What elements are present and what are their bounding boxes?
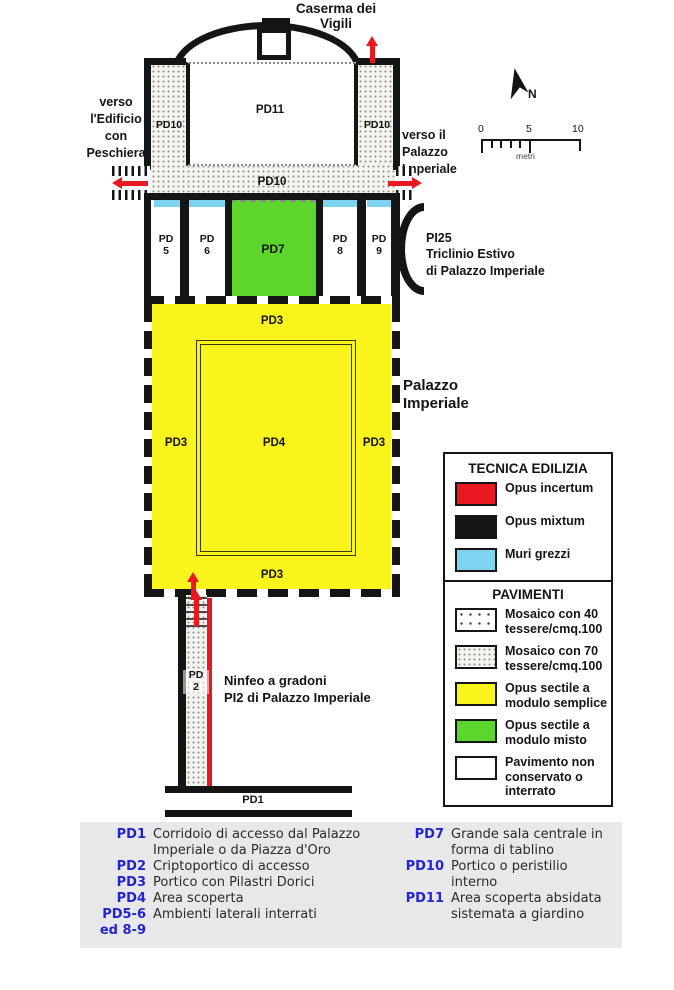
verso-palazzo-imperiale-label: verso il Palazzo Imperiale [402, 127, 478, 178]
pd10-right-label: PD10 [359, 120, 395, 132]
pd10-bottom-label: PD10 [240, 176, 304, 189]
scale-tick-5-label: 5 [526, 124, 532, 136]
legend-item-non-conservato: Pavimento non conservato o interrato [445, 755, 611, 805]
sectile-misto-swatch [455, 719, 497, 743]
rooms-outer-wall-left [144, 200, 151, 304]
wall-pd7-pd8 [316, 200, 323, 298]
pd3-top-label: PD3 [244, 315, 300, 328]
pd10-left-label: PD10 [152, 120, 186, 132]
muri-grezzi-segment-pd9 [367, 200, 391, 207]
site-plan-page: Caserma dei Vigili verso l'Edificio con … [0, 0, 674, 990]
legend-item-opus-mixtum: Opus mixtum [445, 514, 611, 547]
rooms-bottom-wall [144, 296, 400, 304]
caption-row-pd10: PD10 Portico o peristilio interno [388, 859, 618, 891]
non-conservato-swatch [455, 756, 497, 780]
pi25-label: PI25 Triclinio Estivo di Palazzo Imperia… [426, 230, 616, 279]
exit-arrow-right-icon [388, 177, 422, 190]
pd2-label: PD 2 [183, 670, 209, 694]
pd5-label: PD 5 [151, 234, 181, 258]
scale-tick-0-label: 0 [478, 124, 484, 136]
ninfeo-label: Ninfeo a gradoni PI2 di Palazzo Imperial… [224, 673, 444, 707]
pd4-label: PD4 [248, 437, 300, 450]
verso-edificio-peschiera-label: verso l'Edificio con Peschiera [82, 94, 150, 162]
legend-pavimenti-title: PAVIMENTI [445, 582, 611, 607]
scale-unit-label: metri [516, 152, 535, 162]
muri-grezzi-segment-pd5 [154, 200, 180, 207]
north-label: N [528, 88, 537, 101]
scale-bar-line [481, 139, 581, 141]
caption-right-column: PD7 Grande sala centrale in forma di tab… [388, 827, 618, 923]
stairs-hatch-left-top [112, 166, 150, 176]
muri-grezzi-segment-pd6 [189, 200, 225, 207]
pd8-label: PD 8 [324, 234, 356, 258]
palazzo-imperiale-label: Palazzo Imperiale [403, 377, 503, 412]
pd1-wall-bottom [165, 810, 352, 817]
caption-row-pd5-6: PD5-6 ed 8-9 Ambienti laterali interrati [84, 907, 396, 939]
exit-arrow-top-icon [366, 36, 379, 63]
caption-row-pd2: PD2 Criptoportico di accesso [84, 859, 396, 875]
opus-mixtum-swatch [455, 515, 497, 539]
pd1-wall-top [165, 786, 352, 793]
muri-grezzi-segment-pd8 [323, 200, 357, 207]
stairs-hatch-right-top [396, 166, 412, 176]
legend-item-muri-grezzi: Muri grezzi [445, 547, 611, 580]
rooms-top-wall [144, 193, 400, 200]
outer-wall-left [144, 58, 151, 170]
wall-pd8-pd9 [357, 200, 366, 298]
court-wall-left [144, 304, 152, 590]
caption-row-pd11: PD11 Area scoperta absidata sistemata a … [388, 891, 618, 923]
caption-row-pd1: PD1 Corridoio di accesso dal Palazzo Imp… [84, 827, 396, 859]
pd11-label: PD11 [238, 104, 302, 117]
exit-arrow-left-icon [112, 177, 148, 190]
mosaico-70-swatch [455, 645, 497, 669]
muri-grezzi-swatch [455, 548, 497, 572]
wall-pd5-pd6 [180, 200, 189, 298]
scale-tick-10-label: 10 [572, 124, 584, 136]
legend-item-sectile-semplice: Opus sectile a modulo semplice [445, 681, 611, 718]
outer-wall-right [393, 58, 400, 170]
caption-left-column: PD1 Corridoio di accesso dal Palazzo Imp… [84, 827, 396, 939]
caption-row-pd7: PD7 Grande sala centrale in forma di tab… [388, 827, 618, 859]
pd7-label: PD7 [246, 243, 300, 256]
caption-row-pd3: PD3 Portico con Pilastri Dorici [84, 875, 396, 891]
opus-incertum-swatch [455, 482, 497, 506]
scale-bar: 0 5 10 metri [478, 124, 588, 164]
pi25-apse-wall [397, 203, 424, 295]
mosaico-40-swatch [455, 608, 497, 632]
legend-item-opus-incertum: Opus incertum [445, 481, 611, 514]
court-wall-right [392, 304, 400, 590]
pd6-label: PD 6 [190, 234, 224, 258]
pd3-right-label: PD3 [356, 437, 392, 450]
pd9-label: PD 9 [366, 234, 392, 258]
apse-niche [257, 28, 291, 60]
pd2-direction-arrow-icon [190, 590, 203, 626]
pd1-label: PD1 [228, 794, 278, 806]
pd3-bottom-label: PD3 [244, 569, 300, 582]
wall-pd6-pd7 [225, 200, 232, 298]
caption-panel: PD1 Corridoio di accesso dal Palazzo Imp… [80, 822, 622, 948]
legend-item-sectile-misto: Opus sectile a modulo misto [445, 718, 611, 755]
legend-box: TECNICA EDILIZIA Opus incertum Opus mixt… [443, 452, 613, 807]
legend-item-mosaico-40: Mosaico con 40 tessere/cmq.100 [445, 607, 611, 644]
legend-tecnica-title: TECNICA EDILIZIA [445, 454, 611, 481]
sectile-semplice-swatch [455, 682, 497, 706]
legend-item-mosaico-70: Mosaico con 70 tessere/cmq.100 [445, 644, 611, 681]
caption-row-pd4: PD4 Area scoperta [84, 891, 396, 907]
pd3-left-label: PD3 [158, 437, 194, 450]
